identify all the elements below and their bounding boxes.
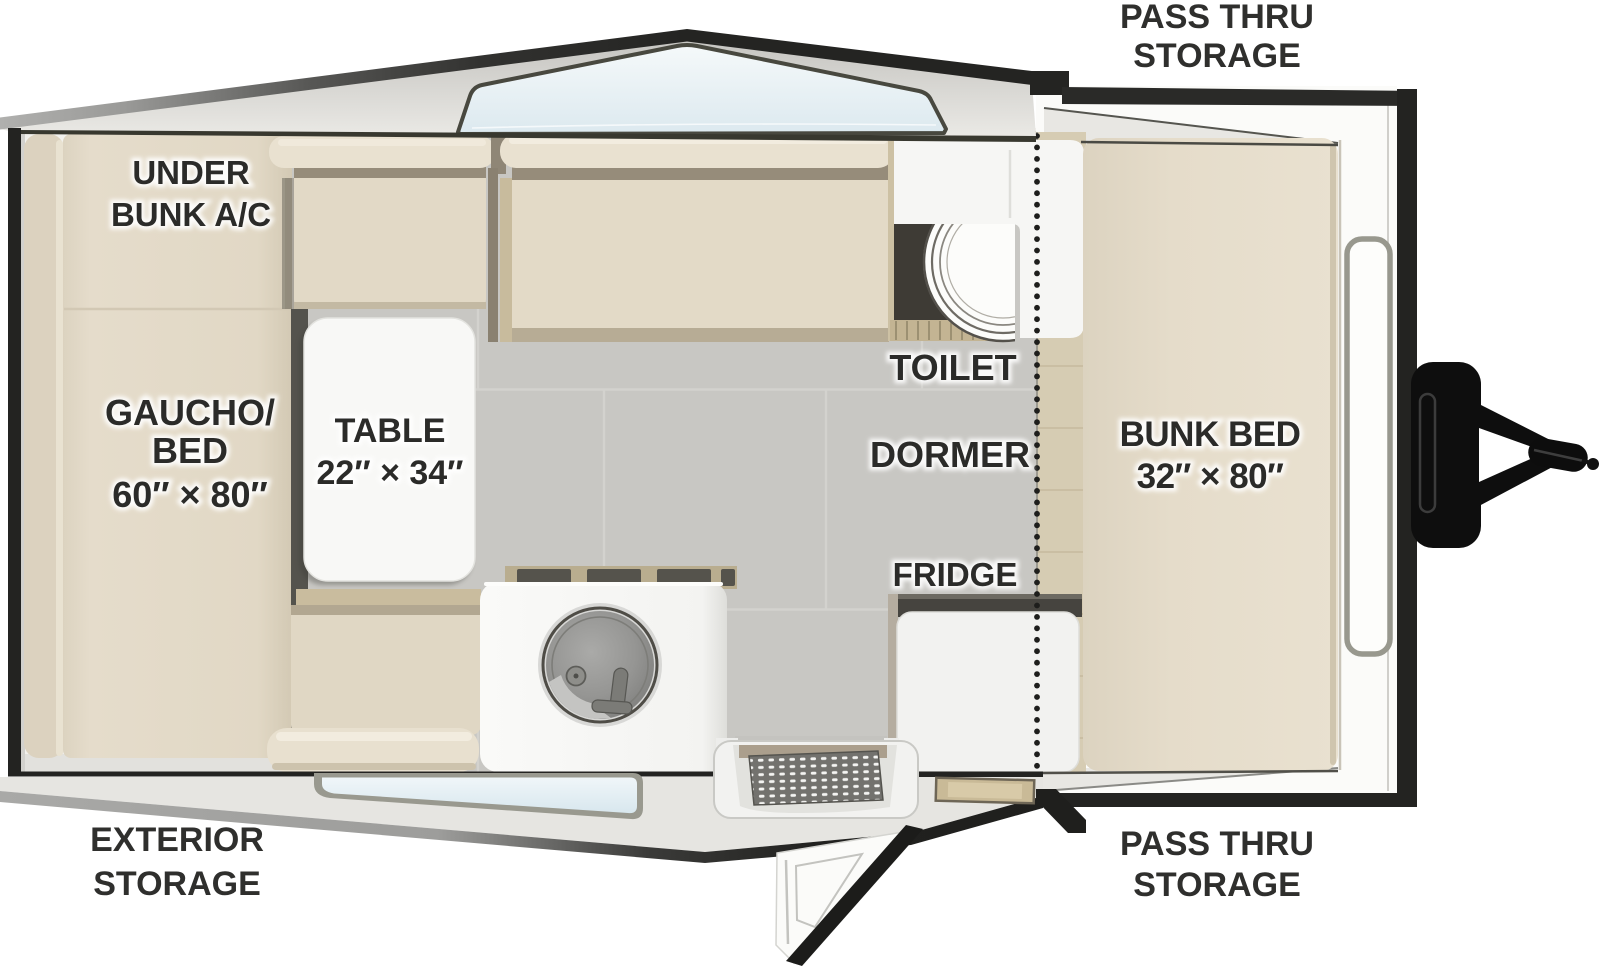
svg-text:22″ × 34″: 22″ × 34″ [317,454,464,492]
svg-text:60″ × 80″: 60″ × 80″ [112,474,268,515]
svg-text:TOILET: TOILET [889,347,1016,388]
svg-text:STORAGE: STORAGE [1133,866,1301,904]
svg-text:BED: BED [152,430,228,471]
svg-text:PASS THRU: PASS THRU [1120,0,1314,36]
svg-text:UNDER: UNDER [132,154,250,191]
svg-text:EXTERIOR: EXTERIOR [90,821,264,859]
svg-text:STORAGE: STORAGE [93,865,261,903]
svg-text:STORAGE: STORAGE [1133,37,1301,75]
svg-text:FRIDGE: FRIDGE [893,556,1018,593]
svg-text:GAUCHO/: GAUCHO/ [105,392,275,433]
svg-text:DORMER: DORMER [870,434,1030,475]
svg-text:32″ × 80″: 32″ × 80″ [1137,457,1285,496]
svg-text:PASS THRU: PASS THRU [1120,825,1314,863]
svg-text:BUNK A/C: BUNK A/C [111,196,271,233]
svg-text:BUNK BED: BUNK BED [1120,415,1301,454]
svg-text:TABLE: TABLE [335,412,446,450]
